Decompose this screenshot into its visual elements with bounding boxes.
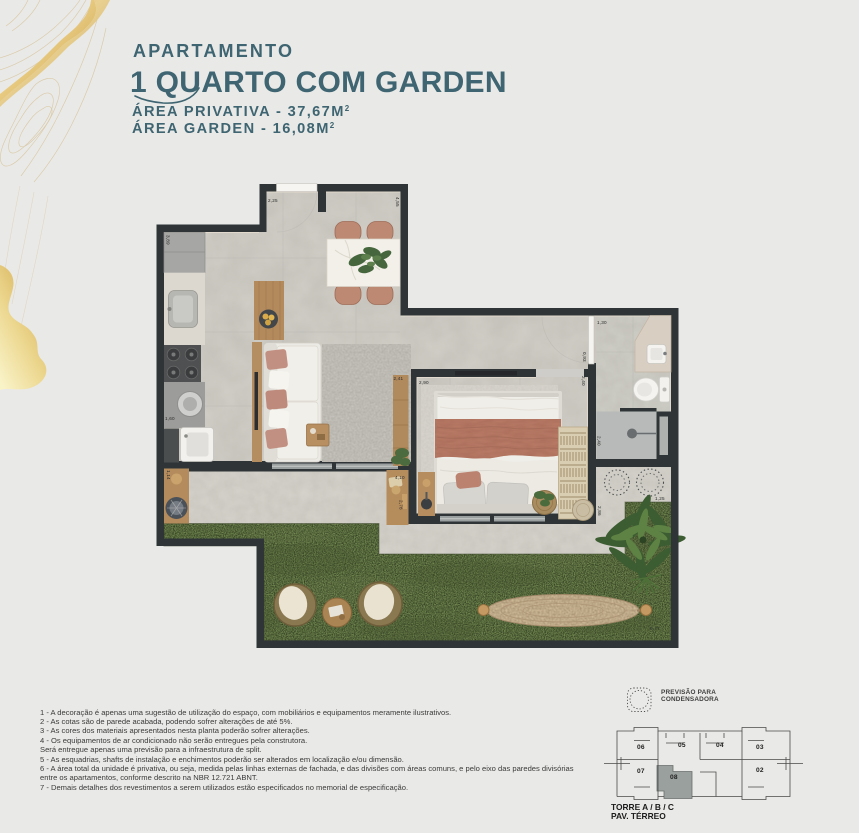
svg-text:1,14: 1,14 xyxy=(166,470,171,480)
svg-text:2,78: 2,78 xyxy=(399,500,404,510)
svg-text:2,90: 2,90 xyxy=(419,380,429,385)
svg-text:2,86: 2,86 xyxy=(597,506,602,516)
svg-text:4,55: 4,55 xyxy=(395,197,400,207)
svg-text:1,30: 1,30 xyxy=(597,320,607,325)
svg-text:2,41: 2,41 xyxy=(394,376,404,381)
svg-text:8,77: 8,77 xyxy=(650,626,660,631)
svg-text:0,93: 0,93 xyxy=(582,352,587,362)
svg-text:3,89: 3,89 xyxy=(166,235,171,245)
svg-text:2,40: 2,40 xyxy=(597,436,602,446)
svg-text:2,25: 2,25 xyxy=(268,198,278,203)
svg-text:4,10: 4,10 xyxy=(395,475,405,480)
svg-text:1,25: 1,25 xyxy=(655,496,665,501)
svg-text:1,60: 1,60 xyxy=(165,416,175,421)
svg-text:2,40: 2,40 xyxy=(581,376,586,386)
